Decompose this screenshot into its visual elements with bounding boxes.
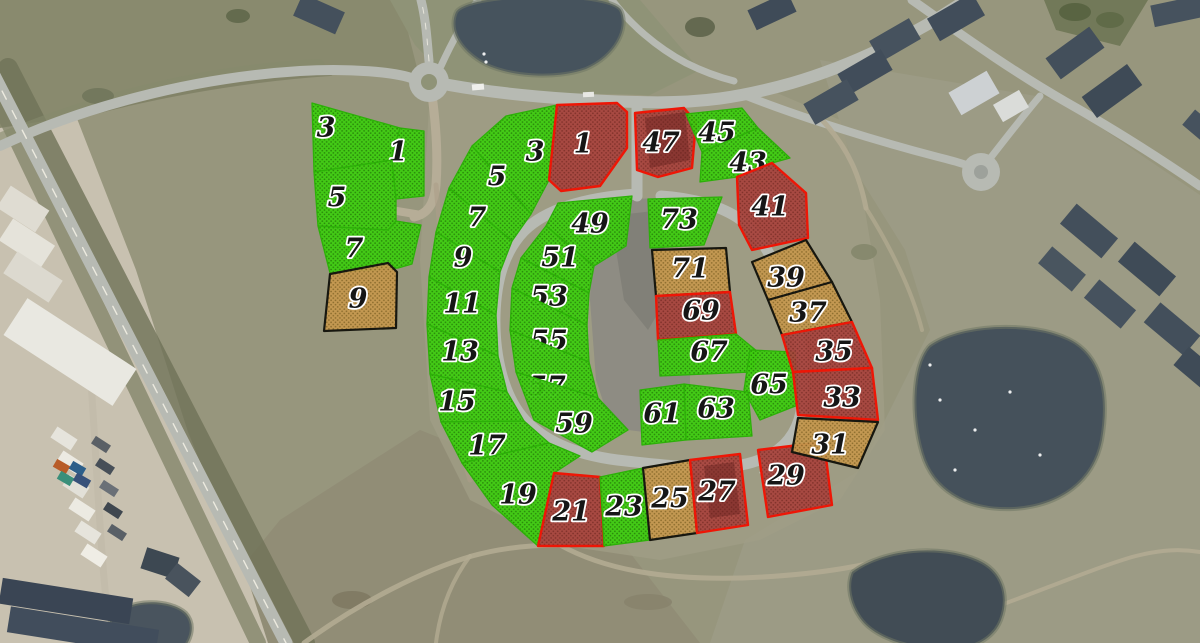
aerial-map: 3157931579111315171921232527294745434149… <box>0 0 1200 643</box>
parcel-area[interactable] <box>656 292 736 340</box>
bush <box>226 9 250 23</box>
parcel-area[interactable] <box>658 334 758 376</box>
bush <box>1096 12 1124 28</box>
parcel-5-green[interactable]: 5 <box>314 160 396 230</box>
pond <box>849 550 1005 643</box>
water-bird <box>482 52 485 55</box>
parcel-9-orange[interactable]: 9 <box>324 263 397 331</box>
water-bird <box>938 398 941 401</box>
parcel-area[interactable] <box>652 248 730 296</box>
parcel-63-green[interactable]: 63 <box>684 384 752 440</box>
parcel-area[interactable] <box>640 384 686 445</box>
roundabout-island <box>421 74 437 90</box>
parcel-area[interactable] <box>324 263 397 331</box>
parcel-7-green[interactable]: 7 <box>318 221 421 273</box>
parcel-47-red[interactable]: 47 <box>635 108 696 177</box>
parcel-area[interactable] <box>600 468 650 546</box>
bush <box>851 244 877 260</box>
parcel-61-green[interactable]: 61 <box>640 384 686 445</box>
water-bird <box>1008 390 1011 393</box>
water-bird <box>1038 453 1041 456</box>
gravel-road <box>397 211 421 215</box>
parcel-27-red[interactable]: 27 <box>690 454 748 533</box>
parcel-69-red[interactable]: 69 <box>656 292 736 340</box>
parcel-25-orange[interactable]: 25 <box>643 460 697 540</box>
aerial-lot-map-stage: 3157931579111315171921232527294745434149… <box>0 0 1200 643</box>
parcel-area[interactable] <box>684 384 752 440</box>
water-bird <box>953 468 956 471</box>
pond <box>914 327 1104 509</box>
water-bird <box>928 363 931 366</box>
vehicle <box>472 83 484 90</box>
water-bird <box>484 60 487 63</box>
parcel-67-green[interactable]: 67 <box>658 334 758 376</box>
vehicle <box>583 92 594 98</box>
parcel-23-green[interactable]: 23 <box>600 468 650 546</box>
parcel-area[interactable] <box>643 460 697 540</box>
parcel-33-red[interactable]: 33 <box>793 368 878 420</box>
parcel-area[interactable] <box>314 160 396 230</box>
parcel-roof-showthrough <box>704 462 740 518</box>
bush <box>685 17 715 37</box>
bush <box>332 591 372 609</box>
parcel-roof-showthrough <box>645 112 690 168</box>
parcel-area[interactable] <box>793 368 878 420</box>
cul-de-sac-island <box>974 165 988 179</box>
parcel-area[interactable] <box>318 221 421 273</box>
parcel-71-orange[interactable]: 71 <box>652 248 730 296</box>
bush <box>1059 3 1091 21</box>
water-bird <box>973 428 976 431</box>
bush <box>624 594 672 610</box>
